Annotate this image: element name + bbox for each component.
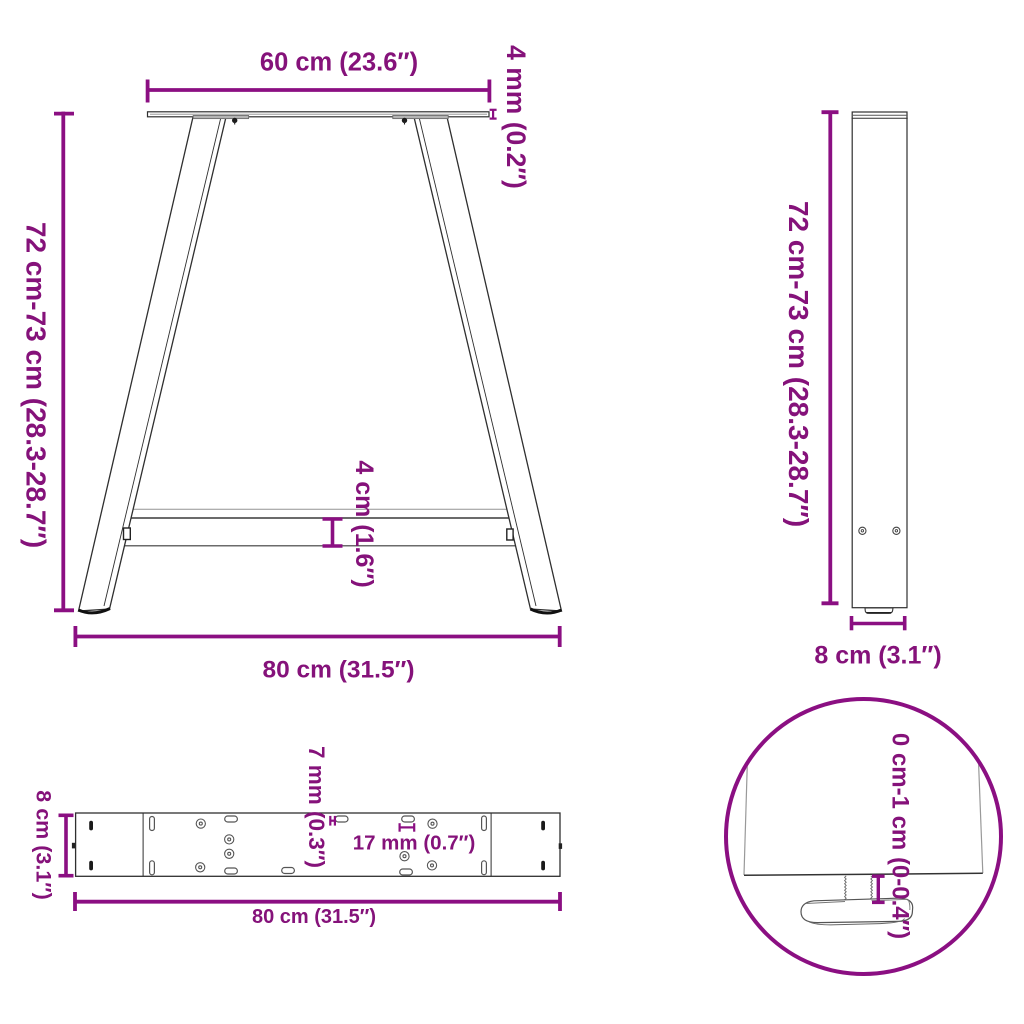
svg-text:80 cm (31.5″): 80 cm (31.5″): [252, 906, 376, 928]
svg-text:72 cm-73 cm (28.3-28.7″): 72 cm-73 cm (28.3-28.7″): [20, 222, 51, 548]
svg-text:8 cm (3.1″): 8 cm (3.1″): [814, 642, 941, 670]
svg-text:8 cm (3.1″): 8 cm (3.1″): [32, 790, 56, 899]
svg-text:17 mm (0.7″): 17 mm (0.7″): [353, 832, 476, 855]
svg-text:80 cm (31.5″): 80 cm (31.5″): [262, 657, 414, 684]
svg-text:60 cm (23.6″): 60 cm (23.6″): [260, 49, 418, 77]
svg-text:0 cm-1 cm (0-0.4″): 0 cm-1 cm (0-0.4″): [887, 733, 914, 939]
svg-text:4 mm (0.2″): 4 mm (0.2″): [501, 45, 531, 189]
svg-text:7 mm (0.3″): 7 mm (0.3″): [304, 746, 329, 868]
svg-text:72 cm-73 cm (28.3-28.7″): 72 cm-73 cm (28.3-28.7″): [783, 201, 814, 527]
svg-text:4 cm (1.6″): 4 cm (1.6″): [350, 460, 378, 587]
